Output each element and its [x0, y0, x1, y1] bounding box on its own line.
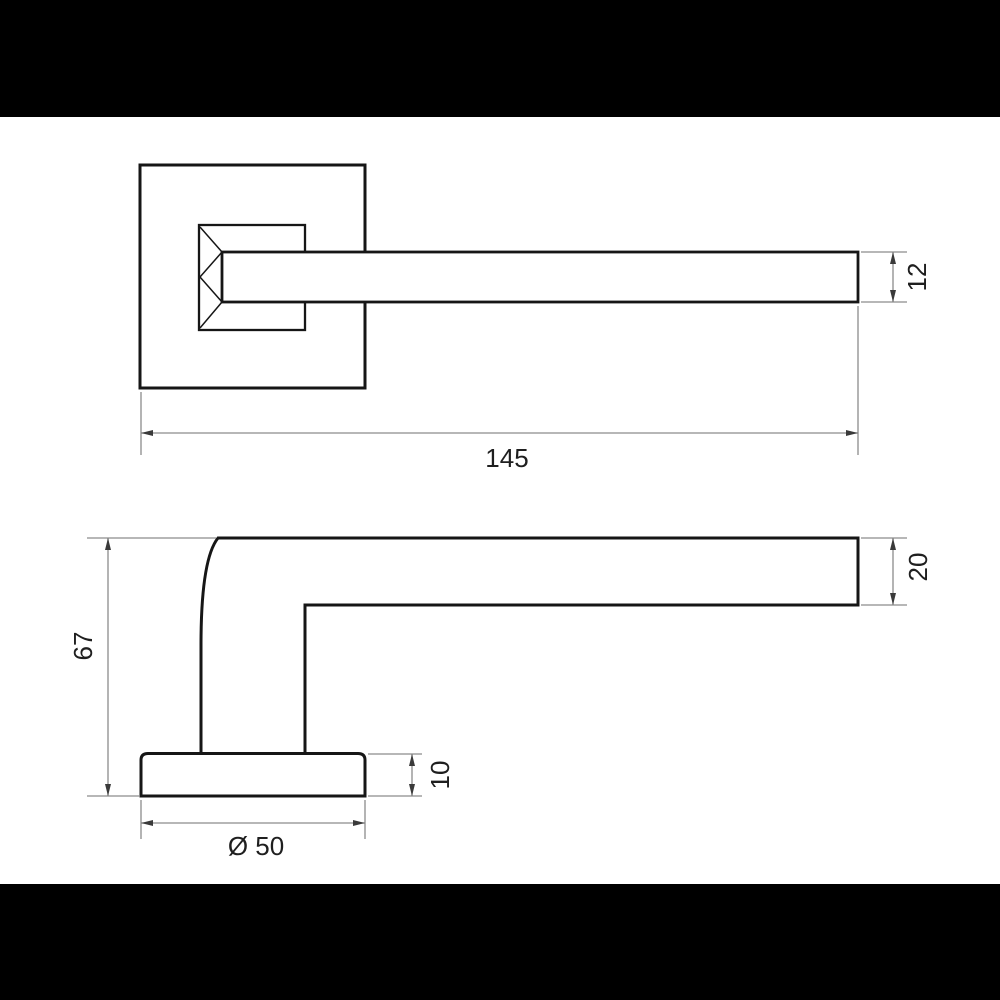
- dimension-lever-thickness: 12: [861, 252, 932, 302]
- dimension-rosette-thickness: 10: [368, 754, 455, 796]
- letterbox-top: [0, 0, 1000, 117]
- rosette-thickness-label: 10: [425, 761, 455, 790]
- lever-bar-plan: [222, 252, 858, 302]
- lever-height-label: 20: [903, 553, 933, 582]
- rosette-diameter-label: Ø 50: [228, 831, 284, 861]
- facet-line-bottom: [200, 302, 222, 328]
- facet-line-upper-mid: [200, 252, 222, 277]
- overall-height-label: 67: [68, 632, 98, 661]
- overall-length-label: 145: [485, 443, 528, 473]
- handle-profile-outline: [201, 538, 858, 753]
- letterbox-bottom: [0, 884, 1000, 1000]
- facet-line-top: [200, 227, 222, 252]
- side-view: 20 67 10 Ø 50: [68, 538, 933, 861]
- dimension-lever-height: 20: [861, 538, 933, 605]
- dimension-rosette-diameter: Ø 50: [141, 800, 365, 861]
- facet-line-lower-mid: [200, 277, 222, 302]
- neck-facet-lines: [200, 227, 222, 328]
- top-view: 12 145: [140, 165, 932, 473]
- technical-drawing-canvas: 12 145 20 67: [0, 0, 1000, 1000]
- lever-thickness-label: 12: [902, 263, 932, 292]
- rosette-side-outline: [141, 754, 365, 797]
